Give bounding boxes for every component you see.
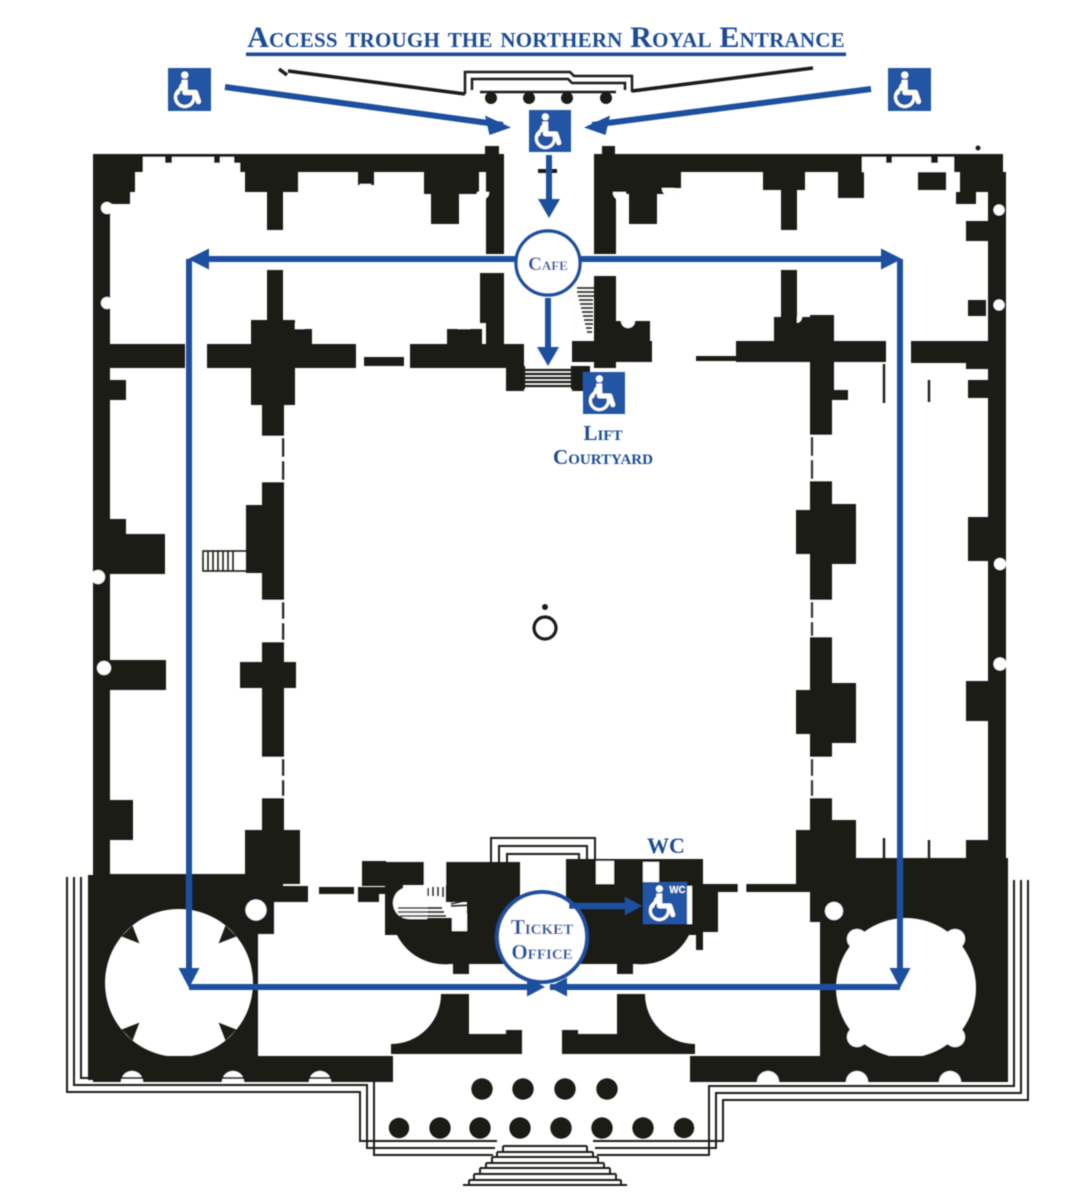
svg-text:Office: Office [511, 940, 572, 964]
svg-text:WC: WC [647, 833, 685, 858]
svg-text:Ticket: Ticket [511, 915, 573, 939]
svg-text:Lift: Lift [583, 421, 622, 445]
svg-text:Cafe: Cafe [528, 254, 568, 275]
svg-text:WC: WC [669, 885, 685, 896]
svg-text:Courtyard: Courtyard [553, 445, 653, 469]
svg-text:Access trough the northern Roy: Access trough the northern Royal Entranc… [247, 21, 845, 54]
